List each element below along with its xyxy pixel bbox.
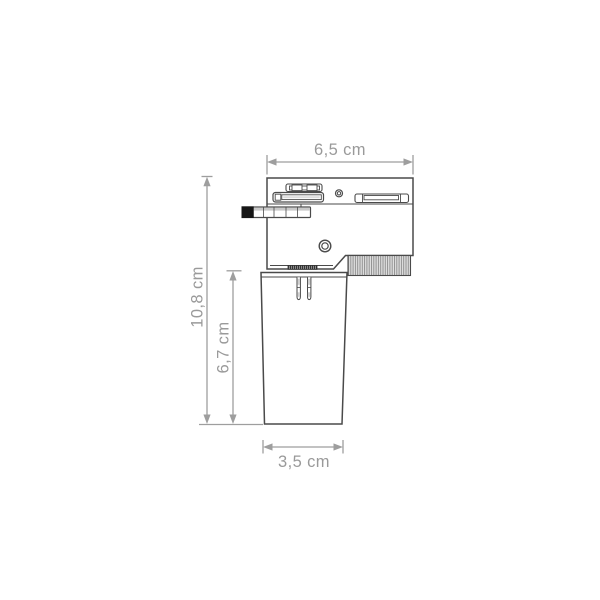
arrow-right-icon: [404, 158, 414, 165]
technical-drawing-canvas: 6,5 cm 10,8 cm 6,7 cm 3,5 cm: [0, 0, 600, 600]
contact-slot-lower: [273, 193, 324, 203]
contact-slot-right: [355, 194, 409, 203]
dimension-bottom-width: 3,5 cm: [263, 440, 343, 471]
arrow-left-icon: [267, 158, 277, 165]
dimension-total-height: 10,8 cm: [189, 177, 213, 425]
arrow-down-icon: [203, 415, 210, 425]
dim-label-top-width: 6,5 cm: [314, 141, 366, 159]
lamp-holder: [261, 273, 347, 425]
dim-label-holder-height: 6,7 cm: [215, 322, 233, 374]
arrow-down-icon: [229, 415, 236, 425]
arrow-up-icon: [229, 271, 236, 281]
arrow-left-icon: [263, 443, 273, 450]
lever-knob: [242, 207, 253, 218]
dimension-top-width: 6,5 cm: [267, 141, 413, 175]
ribbed-heatsink: [348, 256, 411, 276]
band-screw: [336, 190, 343, 197]
contact-slot-upper: [286, 184, 322, 192]
dim-label-total-height: 10,8 cm: [189, 266, 207, 328]
dim-label-bottom-width: 3,5 cm: [278, 453, 330, 471]
arrow-up-icon: [203, 177, 210, 187]
adapter-head: [242, 178, 413, 276]
dimension-holder-height: 6,7 cm: [215, 271, 242, 424]
holder-prong-left: [297, 277, 300, 299]
holder-prong-right: [308, 277, 311, 299]
diagram-page: 6,5 cm 10,8 cm 6,7 cm 3,5 cm: [0, 0, 600, 600]
arrow-right-icon: [334, 443, 344, 450]
lamp-holder-outline: [261, 273, 347, 425]
center-screw: [319, 240, 331, 252]
